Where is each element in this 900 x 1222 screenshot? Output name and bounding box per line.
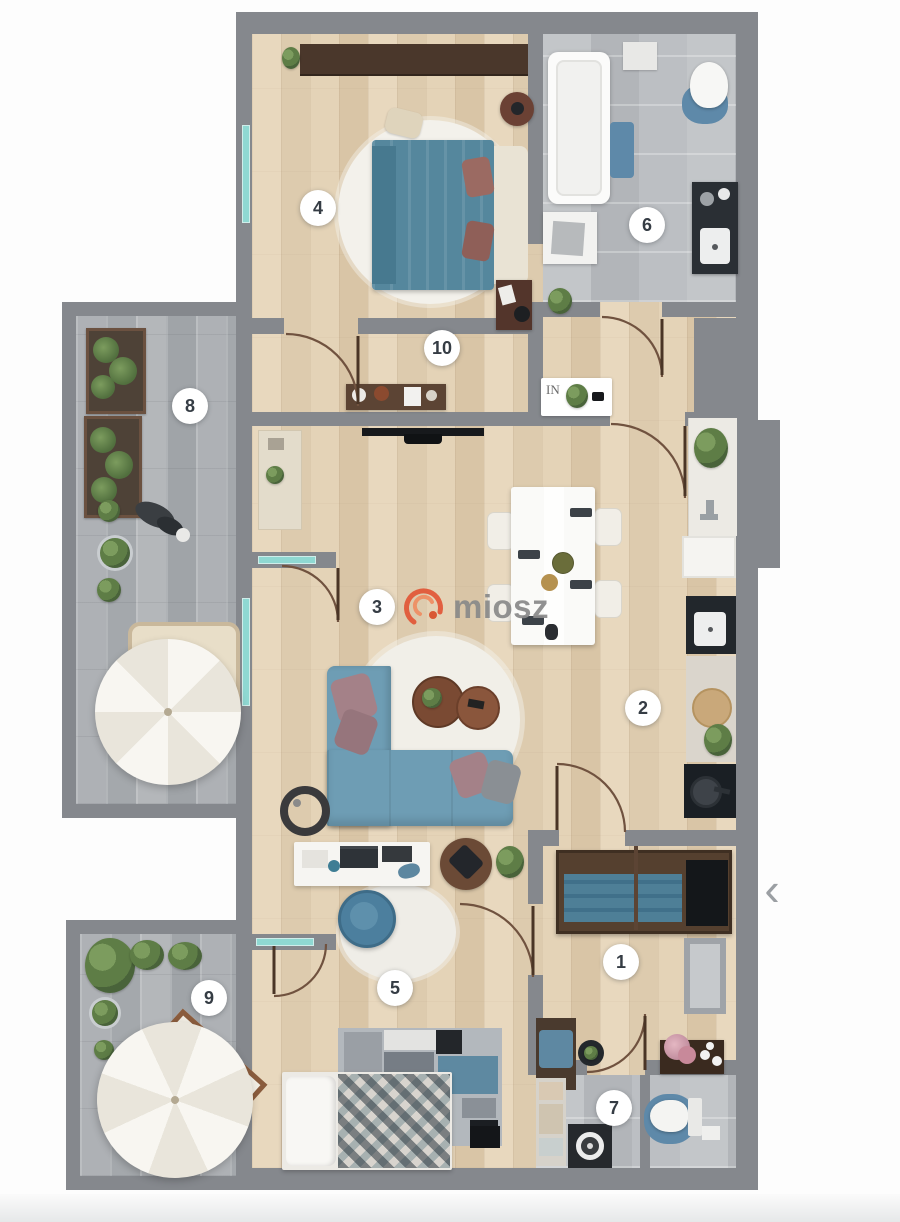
floor-lamp [280,786,330,836]
window [256,938,314,946]
desk-chair-seat [350,902,378,930]
desk-papers [382,846,412,862]
carousel-prev-button[interactable]: ‹ [752,864,792,914]
placemat [570,508,592,517]
room-label-10: 10 [424,330,460,366]
room-number: 5 [390,978,400,999]
rug-block [462,1098,496,1118]
potted-plant [548,288,572,314]
towel-stack [539,1138,563,1156]
potted-plant [100,538,130,568]
wall [736,12,758,1190]
room-label-6: 6 [629,207,665,243]
floorplan-canvas: IN [0,0,900,1222]
kitchen-faucet [700,514,718,520]
potted-plant [266,466,284,484]
potted-plant [704,724,732,756]
rug-block [436,1030,462,1054]
window [242,598,250,706]
decor-ball [706,1042,714,1050]
wall [528,830,543,904]
doormat-remote [592,392,604,401]
console-plate [352,388,366,402]
toilet [650,1100,688,1132]
food-plate [692,688,732,728]
terrace-wall [62,302,252,316]
washer-knob [587,1143,593,1149]
room-number: 4 [313,198,323,219]
potted-plant [97,578,121,602]
room-number: 6 [642,215,652,236]
potted-plant [584,1046,598,1060]
decor-ball [700,1050,710,1060]
dresser-bowl [514,306,530,322]
placemat [570,580,592,589]
room-label-9: 9 [191,980,227,1016]
room-number: 8 [185,396,195,417]
potted-plant [422,688,442,708]
bed-end-stool [470,1126,500,1148]
console-vase [374,386,389,401]
bath-mat [610,122,634,178]
room-label-1: 1 [603,944,639,980]
room-label-7: 7 [596,1090,632,1126]
room-number: 7 [609,1098,619,1119]
room-label-8: 8 [172,388,208,424]
wall [236,12,758,34]
room-number: 9 [204,988,214,1009]
toilet [690,62,728,108]
entry-doormat-label: IN [546,382,560,397]
brand-watermark: miosz [400,584,549,630]
wall [543,830,559,846]
fridge [682,536,736,578]
potted-plant [496,846,524,878]
nightstand-decor [511,102,524,115]
potted-plant [168,942,202,970]
sink-drain [712,244,718,250]
wardrobe-interior [564,874,682,922]
laptop [340,846,378,868]
terrace-wall [62,804,252,818]
console-card [404,387,421,406]
room-label-3: 3 [359,589,395,625]
wall [758,420,780,568]
room-number: 2 [638,698,648,719]
room-label-4: 4 [300,190,336,226]
bed-blanket [338,1074,450,1168]
toilet-tank [688,1098,702,1136]
person-bag [176,528,190,542]
potted-plant [98,500,120,522]
potted-plant [85,938,135,993]
decor-ball [712,1056,722,1066]
bench-cushion [539,1030,573,1068]
watermark-text: miosz [453,588,549,626]
entry-wall-block [694,318,736,420]
wardrobe [300,44,528,76]
placemat [518,550,540,559]
wall [528,12,543,244]
wall [662,302,738,317]
towel-stack [539,1082,563,1100]
room-label-2: 2 [625,690,661,726]
mirror-panel-inner [690,944,720,1008]
soap-dish [718,188,730,200]
room-number: 3 [372,597,382,618]
headboard [494,146,528,284]
planter-box [86,328,146,414]
console-knob [426,390,437,401]
tv-mount [404,434,442,444]
sink-drain [708,627,713,632]
flower-bouquet [678,1046,696,1064]
room-label-5: 5 [377,970,413,1006]
salad-bowl [552,552,574,574]
bathroom-shelf [702,1126,720,1140]
wall [625,830,738,846]
terrace-wall [66,920,252,934]
soap-dish [700,192,714,206]
potted-plant [694,428,728,468]
shower-drain [551,221,585,256]
terrace-wall [66,920,80,1190]
bathtub-basin [556,60,602,196]
desk-mug [328,860,340,872]
bathroom-cabinet [623,42,657,70]
bed-pillow [286,1076,336,1166]
room-number: 10 [432,338,452,359]
bed-throw [372,146,396,284]
miosz-logo-icon [400,584,446,630]
desk-pad [302,850,328,868]
page-bottom-fade [0,1194,900,1222]
dining-chair [594,580,622,618]
potted-plant [92,1000,118,1026]
wardrobe-column [686,860,728,926]
potted-plant [282,47,300,69]
shelf-decor [268,438,284,450]
potted-plant [130,940,164,970]
rug-block [384,1030,436,1050]
terrace-wall [66,1176,252,1190]
dining-chair [594,508,622,546]
wall [252,318,284,334]
window [242,125,250,223]
window [258,556,316,564]
floor-lamp-pole [293,799,301,807]
leaf-print [539,1104,563,1134]
terrace-wall [62,302,76,818]
parasol-umbrella [95,639,241,785]
potted-plant [566,384,588,408]
room-number: 1 [616,952,626,973]
door-leaf [634,846,638,930]
wall [236,1168,758,1190]
